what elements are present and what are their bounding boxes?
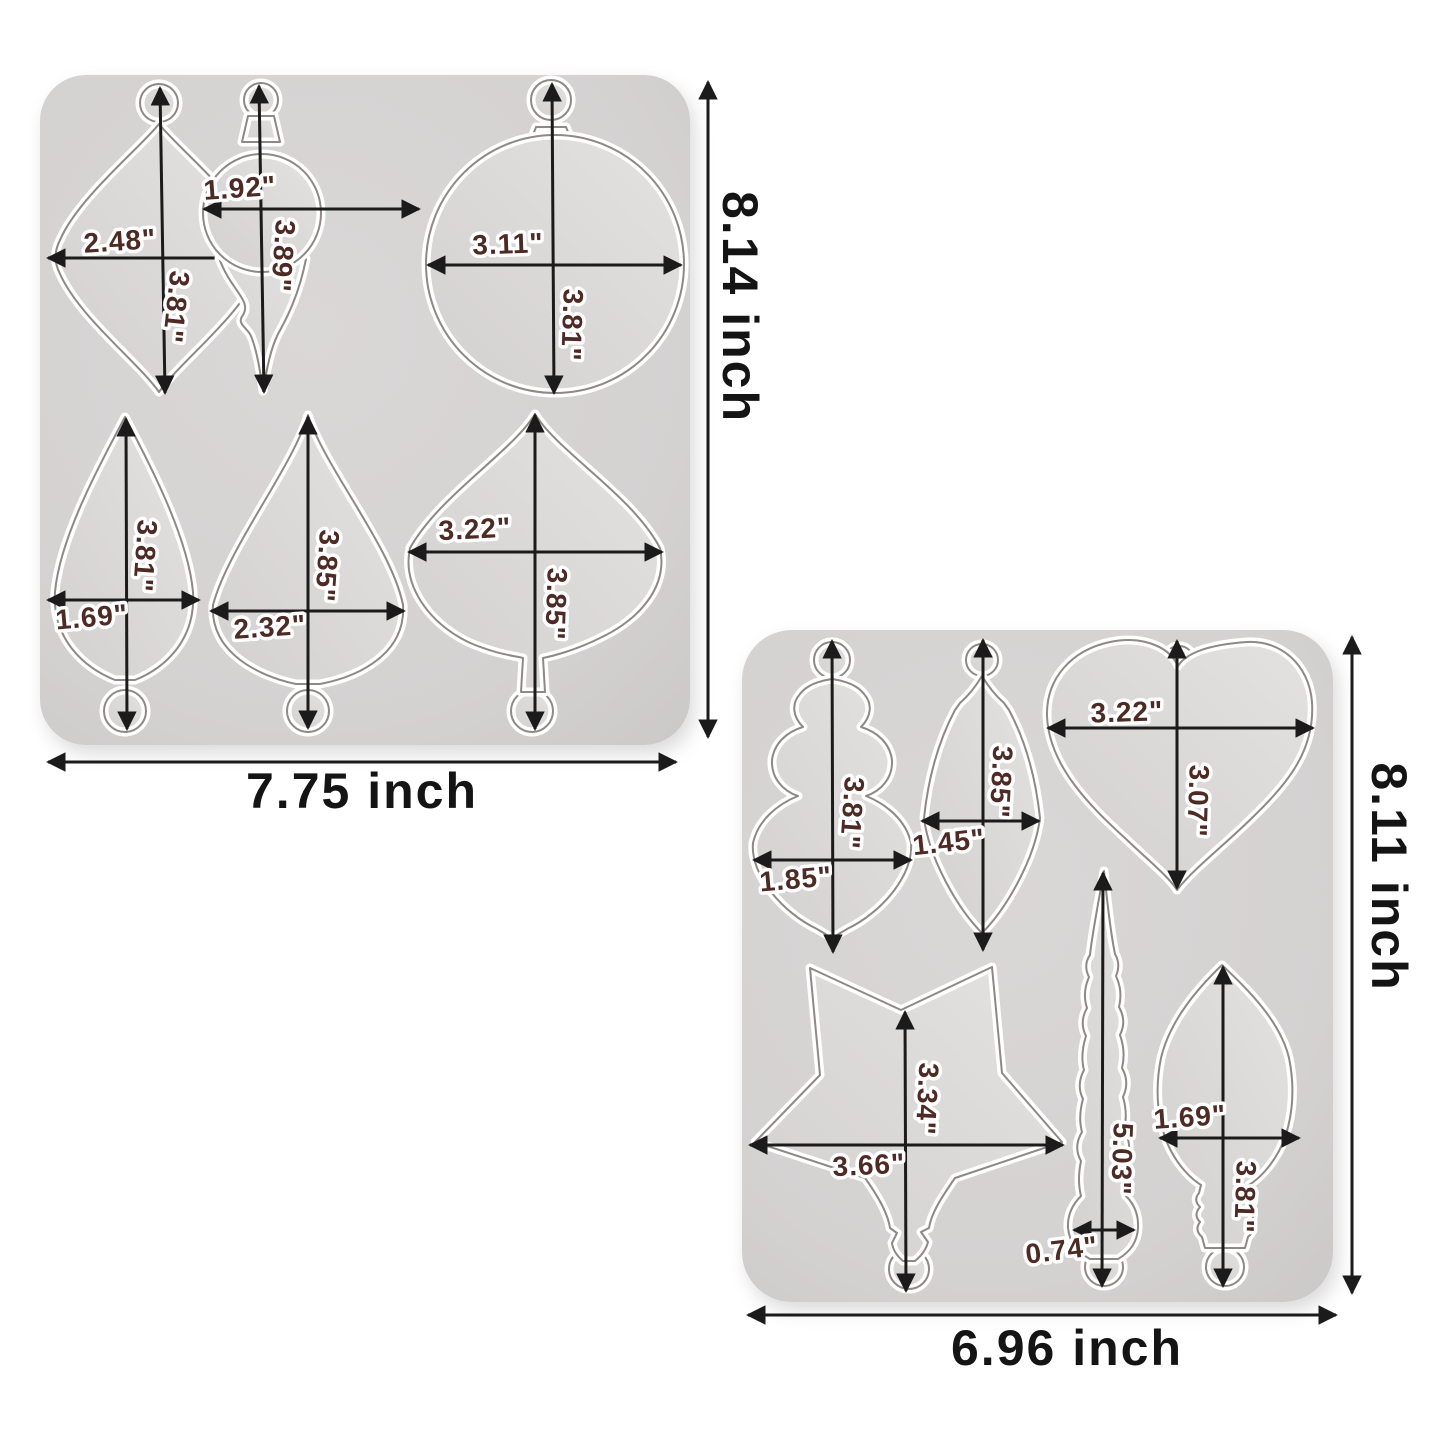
height-dimension-arrow [832,641,833,952]
height-label: 3.81" [1228,1160,1262,1234]
height-dimension-arrow [1102,873,1103,1286]
width-label: 2.48" [82,223,157,259]
width-label: 1.85" [758,860,833,897]
width-label: 3.22" [1090,695,1164,729]
product-dimension-image: 2.48" 3.81" 1.92" 3.89" [0,0,1440,1440]
height-label: 3.07" [1181,764,1215,838]
height-label: 3.85" [539,567,573,641]
width-label: 1.92" [202,170,277,206]
height-label: 3.89" [265,219,301,294]
height-label: 3.81" [555,288,589,362]
mold-1-height-label: 8.14 inch [712,191,768,423]
height-label: 5.03" [1105,1122,1139,1196]
height-dimension-arrow [552,84,554,393]
mold-2-height-label: 8.11 inch [1361,762,1417,991]
height-dimension-arrow [905,1012,906,1291]
width-label: 1.69" [1152,1099,1227,1135]
height-label: 3.81" [834,776,870,851]
mold-2: 1.85" 3.81" 1.45" 3.85" 3.22" 3.07" [742,630,1417,1376]
mold-1-width-label: 7.75 inch [246,763,478,819]
mold-1: 2.48" 3.81" 1.92" 3.89" [40,75,768,819]
molds-diagram: 2.48" 3.81" 1.92" 3.89" [0,0,1440,1440]
height-label: 3.85" [309,529,345,604]
height-label: 3.85" [984,745,1019,819]
width-label: 1.69" [54,598,129,635]
mold-2-width-label: 6.96 inch [951,1320,1183,1376]
width-label: 3.22" [438,512,512,547]
height-label: 3.81" [127,519,163,594]
height-dimension-arrow [126,419,127,729]
width-label: 2.32" [232,609,307,645]
width-label: 3.11" [472,227,544,260]
height-label: 3.34" [910,1062,945,1136]
width-label: 3.66" [832,1148,906,1183]
